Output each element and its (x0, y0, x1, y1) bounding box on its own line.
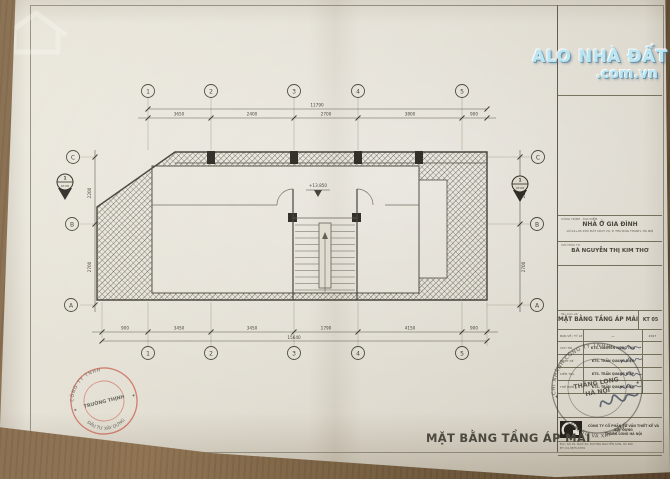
grid-bubble-label: 5 (460, 88, 464, 95)
section-marker-left: 1 KT.08 (57, 174, 73, 200)
watermark-brand: ALO NHÀ ĐẤT (532, 49, 668, 67)
dim-label: 900 (470, 326, 478, 331)
role-label: KIỂM TRA (558, 368, 584, 380)
dim-label: 3800 (405, 112, 416, 117)
dim-label: 3650 (174, 112, 185, 117)
project-name: NHÀ Ở GIA ĐÌNH (558, 221, 662, 228)
role-label: CHỦ TRÌ (558, 342, 584, 354)
section-number: 1 (63, 176, 66, 182)
role-row: THỂ HIỆN KTS. TRẦN QUANG ĐIỆP (558, 381, 662, 394)
grid-bubble-label: A (535, 302, 540, 309)
drawing-number: KT 05 (638, 311, 662, 329)
grid-bubble-label: A (69, 302, 74, 309)
role-name: KTS. TRẦN QUANG ĐIỆP (584, 355, 642, 367)
grid-bubble-label: 3 (292, 350, 296, 357)
role-name: KTS. NGUYỄN NGỌC THỤ (584, 342, 642, 354)
grid-bubble-label: B (535, 221, 539, 228)
dim-label: 2400 (247, 112, 258, 117)
role-label: THIẾT KẾ (558, 355, 584, 367)
photo-of-drawing: +13.850 3650 2400 2700 3800 900 (0, 0, 670, 479)
role-row: CHỦ TRÌ KTS. NGUYỄN NGỌC THỤ (558, 342, 662, 355)
grid-bubble-label: 2 (209, 88, 213, 95)
door-swing-left (277, 189, 293, 205)
grid-bubble-label: 2 (209, 350, 213, 357)
signature-cell (642, 355, 662, 367)
drawing-name-box: Tên bản vẽ: MẶT BẰNG TẦNG ÁP MÁI KT 05 (558, 311, 662, 330)
watermark: ALO NHÀ ĐẤT .com.vn (532, 49, 668, 82)
dim-total-label: 11790 (310, 103, 324, 108)
grid-bubble-label: B (70, 221, 74, 228)
year-value: 2017 (642, 330, 662, 341)
dim-label: 1790 (321, 326, 332, 331)
project-address: LÔ 04+05 KHU ĐẤT DỊCH VỤ, P. THƯỢNG THAN… (558, 229, 662, 233)
section-sheet-ref: KT.08 (61, 184, 69, 188)
title-block-empty-box (558, 96, 662, 216)
bottom-dimensions: 900 3450 3450 1790 4150 900 15640 (92, 326, 498, 344)
grid-bubble-label: 3 (292, 88, 296, 95)
scale-row: BẢN VẼ / TỶ LỆ — 2017 (558, 330, 662, 342)
role-name: KTS. TRẦN QUANG ĐIỆP (584, 368, 642, 380)
dim-label: 3450 (174, 326, 185, 331)
signature-cell (642, 381, 662, 393)
dim-label: 2700 (87, 261, 92, 272)
grid-bubble-label: 4 (356, 88, 360, 95)
dim-label: 4150 (405, 326, 416, 331)
dim-label: 2200 (87, 187, 92, 198)
role-row: THIẾT KẾ KTS. TRẦN QUANG ĐIỆP (558, 355, 662, 368)
watermark-domain: .com.vn (532, 67, 668, 82)
scale-value: — (584, 330, 642, 341)
grid-bubble-label: 1 (146, 88, 150, 95)
dim-label: 2700 (321, 112, 332, 117)
grid-bubble-label: 5 (460, 350, 464, 357)
level-marker: +13.850 (306, 183, 330, 197)
door-swing-right (357, 189, 373, 205)
interior-walls (152, 189, 419, 300)
dim-label: 2700 (521, 261, 526, 272)
project-box: CÔNG TRÌNH - ĐỊA ĐIỂM NHÀ Ở GIA ĐÌNH LÔ … (558, 216, 662, 242)
title-block-empty-box (558, 394, 662, 418)
client-label: CHỦ ĐẦU TƯ (558, 242, 662, 247)
title-block-empty-box (558, 266, 662, 311)
staircase (293, 218, 357, 292)
grid-bubble-label: 1 (146, 350, 150, 357)
client-name: BÀ NGUYỄN THỊ KIM THƠ (558, 248, 662, 254)
company-name-line1: CÔNG TY CỔ PHẦN TƯ VẤN THIẾT KẾ VÀ XÂY D… (585, 424, 662, 432)
company-name-line2: THĂNG LONG HÀ NỘI (585, 432, 662, 436)
top-dimensions: 3650 2400 2700 3800 900 11790 (138, 103, 496, 121)
grid-bubble-label: C (536, 154, 540, 161)
dim-total-label: 15640 (287, 335, 301, 340)
signature-cell (642, 368, 662, 380)
role-row: KIỂM TRA KTS. TRẦN QUANG ĐIỆP (558, 368, 662, 381)
role-name: KTS. TRẦN QUANG ĐIỆP (584, 381, 642, 393)
drawing-name-label: Tên bản vẽ: (558, 311, 638, 316)
dim-label: 900 (470, 112, 478, 117)
drawing-title: MẶT BẰNG TẦNG ÁP MÁI (426, 431, 591, 445)
section-number: 1 (518, 178, 521, 184)
dim-label: 3450 (247, 326, 258, 331)
signature-cell (642, 342, 662, 354)
scale-label: BẢN VẼ / TỶ LỆ (558, 330, 584, 341)
grid-bubble-label: C (71, 154, 75, 161)
section-sheet-ref: KT.08 (516, 186, 524, 190)
client-box: CHỦ ĐẦU TƯ BÀ NGUYỄN THỊ KIM THƠ (558, 242, 662, 266)
drawing-name: MẶT BẰNG TẦNG ÁP MÁI (558, 317, 638, 323)
level-label: +13.850 (309, 183, 327, 188)
dim-label: 900 (121, 326, 129, 331)
grid-bubble-label: 4 (356, 350, 360, 357)
role-label: THỂ HIỆN (558, 381, 584, 393)
company-phone: ĐT: 04.3875.6789 (560, 447, 660, 451)
